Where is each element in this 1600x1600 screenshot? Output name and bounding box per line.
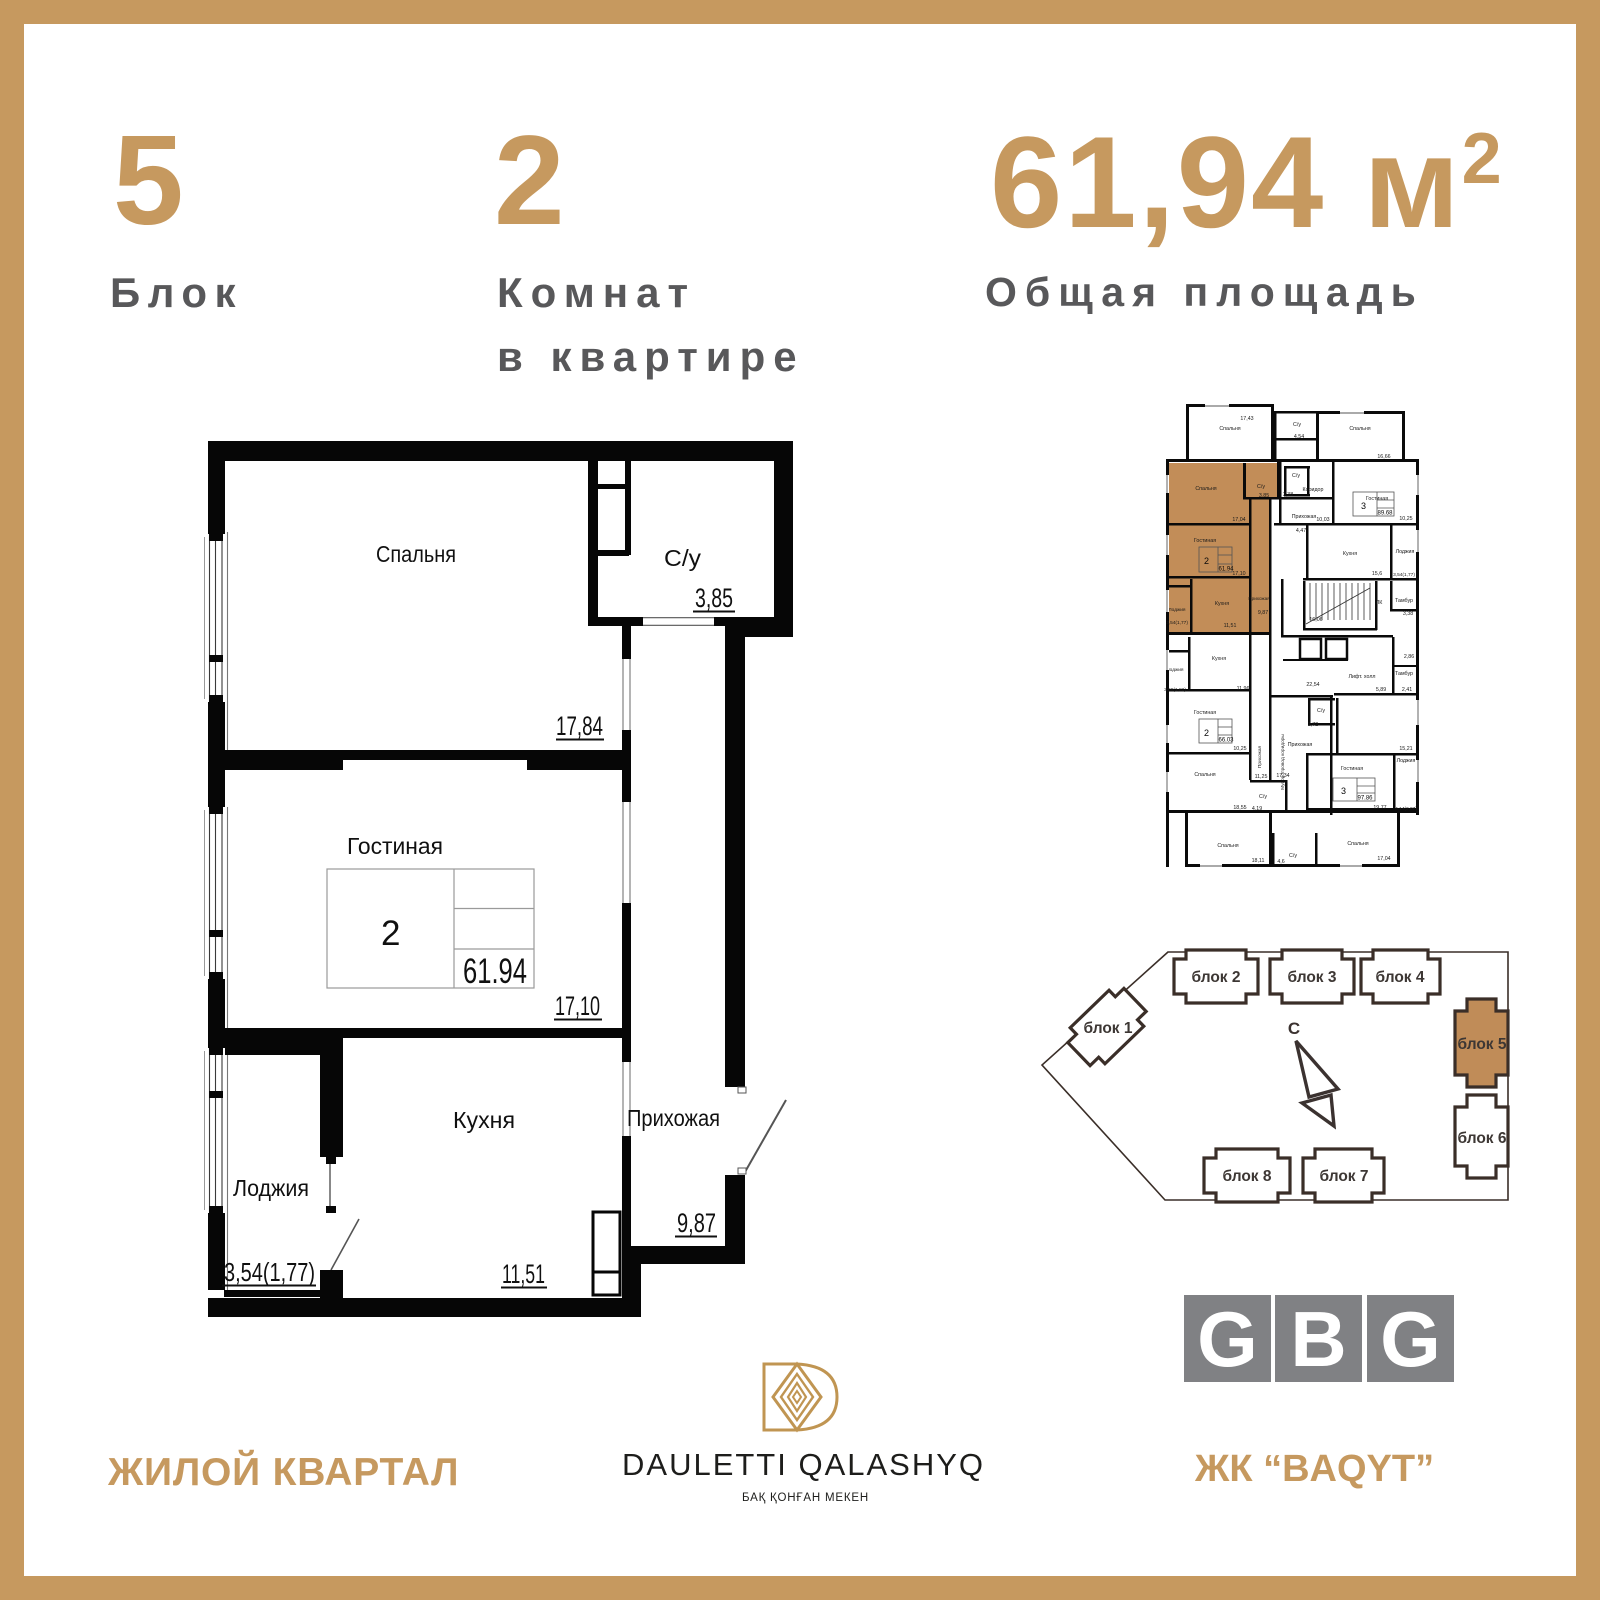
svg-text:3,54(1,77): 3,54(1,77) — [1393, 572, 1415, 578]
svg-text:3: 3 — [1361, 501, 1366, 511]
svg-text:С/у: С/у — [1317, 708, 1325, 714]
svg-text:2,86: 2,86 — [1404, 654, 1414, 660]
svg-text:Лоджия: Лоджия — [1397, 758, 1416, 764]
svg-text:19,77: 19,77 — [1373, 805, 1386, 811]
svg-text:Спальня: Спальня — [376, 541, 456, 567]
svg-text:Лоджия: Лоджия — [233, 1175, 309, 1201]
svg-text:4,54: 4,54 — [1294, 434, 1304, 440]
svg-text:15,21: 15,21 — [1399, 746, 1412, 752]
svg-text:Лоджия: Лоджия — [1169, 607, 1186, 613]
svg-text:3,54(1,77): 3,54(1,77) — [1166, 620, 1188, 626]
svg-text:С: С — [1288, 1019, 1300, 1038]
svg-text:11,96: 11,96 — [1237, 686, 1250, 692]
svg-text:Спальня: Спальня — [1217, 843, 1238, 849]
svg-text:4,6: 4,6 — [1277, 859, 1284, 865]
svg-text:Коридор: Коридор — [1303, 487, 1324, 493]
svg-text:Гостиная: Гостиная — [1366, 496, 1388, 502]
svg-text:Спальня: Спальня — [1194, 772, 1215, 778]
svg-text:17,04: 17,04 — [1377, 856, 1390, 862]
svg-text:2: 2 — [1204, 728, 1209, 738]
svg-text:Прихожая: Прихожая — [1288, 742, 1313, 748]
svg-text:Лоджия: Лоджия — [1167, 667, 1184, 673]
svg-text:Мусоропровод коридоры: Мусоропровод коридоры — [1280, 734, 1286, 790]
svg-text:блок 6: блок 6 — [1458, 1130, 1507, 1147]
svg-text:4,14(2,07): 4,14(2,07) — [1395, 806, 1417, 812]
svg-text:Кухня: Кухня — [453, 1107, 515, 1133]
svg-text:Прихожая: Прихожая — [1257, 745, 1263, 768]
svg-text:блок 1: блок 1 — [1084, 1020, 1133, 1037]
svg-text:блок 3: блок 3 — [1288, 969, 1337, 986]
svg-text:16,06: 16,06 — [1309, 617, 1322, 623]
svg-text:17,04: 17,04 — [1232, 517, 1245, 523]
svg-text:3,69(1,82): 3,69(1,82) — [1164, 687, 1186, 693]
svg-text:10,03: 10,03 — [1316, 517, 1329, 523]
svg-text:Гостиная: Гостиная — [1194, 710, 1216, 716]
svg-text:С/у: С/у — [1292, 473, 1300, 479]
svg-text:Кухня: Кухня — [1212, 656, 1226, 662]
svg-text:4,47: 4,47 — [1296, 528, 1306, 534]
svg-text:18,55: 18,55 — [1233, 805, 1246, 811]
svg-text:Гостиная: Гостиная — [347, 833, 443, 859]
svg-text:11,51: 11,51 — [502, 1259, 545, 1289]
svg-text:Прихожая: Прихожая — [627, 1105, 720, 1131]
svg-text:С/у: С/у — [1289, 853, 1297, 859]
svg-text:3: 3 — [1341, 786, 1346, 796]
svg-text:Тамбур: Тамбур — [1395, 671, 1413, 677]
svg-text:17,10: 17,10 — [555, 991, 600, 1021]
svg-text:10,25: 10,25 — [1233, 746, 1246, 752]
svg-text:Гостиная: Гостиная — [1194, 538, 1216, 544]
svg-text:3,54(1,77): 3,54(1,77) — [224, 1257, 315, 1287]
svg-text:2,72: 2,72 — [1308, 722, 1318, 728]
svg-text:18,11: 18,11 — [1252, 858, 1265, 864]
svg-text:3,85: 3,85 — [695, 583, 733, 613]
svg-text:2: 2 — [1204, 556, 1209, 566]
svg-text:89.68: 89.68 — [1378, 511, 1394, 517]
svg-text:17,10: 17,10 — [1232, 571, 1245, 577]
svg-text:Спальня: Спальня — [1195, 486, 1216, 492]
svg-text:Спальня: Спальня — [1347, 841, 1368, 847]
svg-text:5,89: 5,89 — [1376, 687, 1386, 693]
svg-text:Кухня: Кухня — [1343, 551, 1357, 557]
svg-text:С/у: С/у — [1259, 794, 1267, 800]
svg-text:22,54: 22,54 — [1306, 682, 1319, 688]
svg-text:Прихожая: Прихожая — [1248, 596, 1270, 601]
svg-text:блок 7: блок 7 — [1320, 1168, 1369, 1185]
svg-text:11,25: 11,25 — [1255, 774, 1268, 780]
svg-text:11,51: 11,51 — [1224, 623, 1237, 629]
svg-text:15,6: 15,6 — [1372, 571, 1382, 577]
svg-text:17,43: 17,43 — [1240, 416, 1253, 422]
svg-text:Спальня: Спальня — [1219, 426, 1240, 432]
svg-text:3,85: 3,85 — [1259, 493, 1269, 499]
svg-text:ЛК: ЛК — [1376, 600, 1383, 606]
svg-text:61.94: 61.94 — [463, 952, 527, 991]
svg-text:Спальня: Спальня — [1349, 426, 1370, 432]
svg-text:97.86: 97.86 — [1358, 796, 1374, 802]
svg-text:С/у: С/у — [664, 545, 702, 571]
svg-text:3,38: 3,38 — [1283, 492, 1293, 498]
svg-text:Кухня: Кухня — [1215, 601, 1229, 607]
svg-text:66.03: 66.03 — [1219, 738, 1235, 744]
svg-text:С/у: С/у — [1257, 484, 1265, 490]
svg-text:3,38: 3,38 — [1403, 611, 1413, 617]
svg-text:Лоджия: Лоджия — [1396, 549, 1415, 555]
svg-text:2,41: 2,41 — [1402, 687, 1412, 693]
svg-text:10,25: 10,25 — [1399, 516, 1412, 522]
svg-text:16,66: 16,66 — [1377, 454, 1390, 460]
svg-text:С/у: С/у — [1293, 422, 1301, 428]
svg-text:Прихожая: Прихожая — [1292, 514, 1317, 520]
svg-text:9,87: 9,87 — [1258, 610, 1268, 616]
svg-text:блок 2: блок 2 — [1192, 969, 1241, 986]
svg-text:Гостиная: Гостиная — [1341, 766, 1363, 772]
svg-text:Лифт. холл: Лифт. холл — [1348, 674, 1375, 680]
svg-text:17,84: 17,84 — [556, 711, 603, 741]
svg-text:блок 8: блок 8 — [1223, 1168, 1272, 1185]
svg-text:9,87: 9,87 — [677, 1208, 716, 1238]
svg-text:4,19: 4,19 — [1252, 806, 1262, 812]
svg-text:блок 5: блок 5 — [1458, 1036, 1507, 1053]
svg-text:2: 2 — [381, 914, 400, 953]
svg-text:блок 4: блок 4 — [1376, 969, 1425, 986]
svg-text:Тамбур: Тамбур — [1395, 598, 1413, 604]
